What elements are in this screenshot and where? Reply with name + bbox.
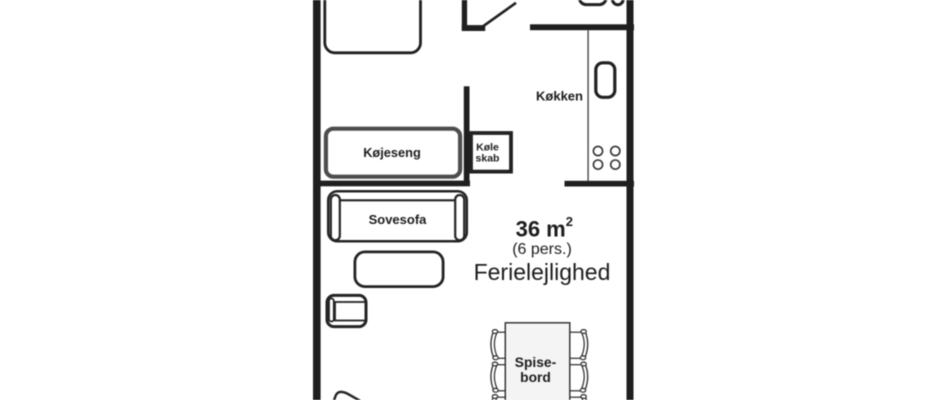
svg-text:bord: bord <box>520 370 551 385</box>
svg-text:Køjeseng: Køjeseng <box>363 145 421 160</box>
svg-text:skab: skab <box>476 153 500 165</box>
svg-text:Ferielejlighed: Ferielejlighed <box>474 259 611 285</box>
svg-text:Køkken: Køkken <box>536 88 583 103</box>
svg-text:Spise-: Spise- <box>515 355 557 370</box>
svg-text:Sovesofa: Sovesofa <box>369 212 428 227</box>
svg-text:36 m2: 36 m2 <box>516 214 573 242</box>
svg-text:(6 pers.): (6 pers.) <box>512 241 572 258</box>
